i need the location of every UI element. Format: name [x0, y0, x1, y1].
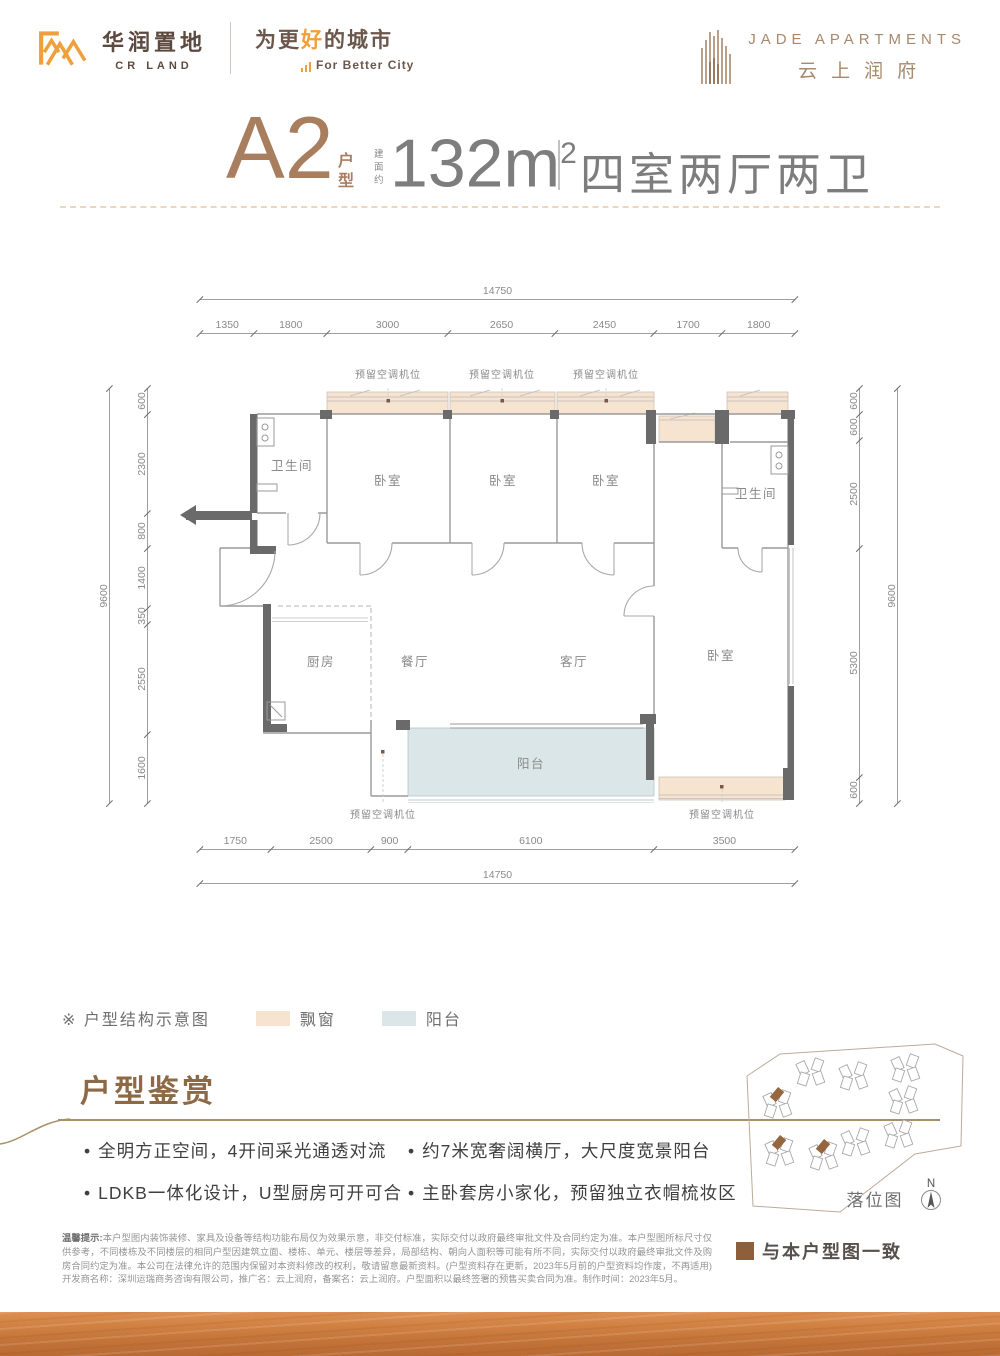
slogan-en: For Better City [316, 58, 414, 72]
dim-bottom-overall: 14750 [200, 870, 795, 888]
svg-text:N: N [927, 1178, 935, 1190]
site-plan-label: 落位图 [847, 1191, 904, 1210]
fixtures [257, 418, 788, 720]
room-label-bed2: 卧室 [489, 473, 517, 488]
disclaimer: 温馨提示:本户型图内装饰装修、家具及设备等结构功能布局仅为效果示意，非交付标准，… [62, 1232, 712, 1287]
room-label-living: 客厅 [560, 654, 588, 669]
room-label-dining: 餐厅 [401, 654, 429, 669]
doors [220, 513, 762, 616]
bay-window-swatch [256, 1011, 290, 1026]
unit-suffix: 户型 [338, 152, 354, 192]
room-label-bed3: 卧室 [592, 473, 620, 488]
dim-right-segments: 60060025005300600 [846, 388, 864, 803]
jade-apartments-logo: JADE APARTMENTS 云上润府 [700, 28, 966, 86]
flyer-page: 华润置地 CR LAND 为更好的城市 For Better City [0, 0, 1000, 1356]
dashed-separator [60, 206, 940, 208]
right-window [790, 548, 794, 684]
cr-slogan: 为更好的城市 For Better City [255, 24, 414, 72]
dim-left-segments: 6002300800140035025501600 [134, 388, 152, 803]
features-column-left: 全明方正空间，4开间采光通透对流 LDKB一体化设计，U型厨房可开可合 [84, 1138, 402, 1205]
cr-land-logo: 华润置地 CR LAND 为更好的城市 For Better City [38, 22, 414, 74]
unit-area: 132m2 [390, 116, 577, 202]
site-legend: 与本户型图一致 [736, 1238, 902, 1264]
plan-legend: ※ 户型结构示意图 飘窗 阳台 [62, 1006, 462, 1030]
feature-item: 全明方正空间，4开间采光通透对流 [84, 1138, 402, 1163]
room-label-bed-master: 卧室 [707, 648, 735, 663]
entry-arrow-icon [180, 505, 196, 525]
tower-bars-icon [700, 28, 734, 86]
bottom-gradient-bar [0, 1312, 1000, 1356]
slogan-cn: 为更好的城市 [255, 24, 414, 54]
room-label-bath-left: 卫生间 [271, 459, 313, 473]
dim-top-segments: 1350180030002650245017001800 [200, 320, 795, 338]
cr-brand-cn: 华润置地 [102, 25, 206, 57]
ac-slot-label: 预留空调机位 [355, 366, 421, 381]
site-plan: 落位图 N [735, 1040, 990, 1225]
cr-brand-en: CR LAND [115, 60, 193, 72]
title-divider [558, 140, 560, 190]
legend-note: ※ 户型结构示意图 [62, 1006, 210, 1030]
equalizer-bars-icon [301, 62, 311, 72]
building-clusters [763, 1054, 920, 1170]
balcony-swatch [382, 1011, 416, 1026]
unit-layout: 四室两厅两卫 [580, 138, 874, 203]
features-title: 户型鉴赏 [80, 1066, 216, 1111]
dim-bottom-segments: 1750250090061003500 [200, 836, 795, 854]
dim-right-overall: 9600 [884, 388, 902, 803]
features-column-right: 约7米宽奢阔横厅，大尺度宽景阳台 主卧套房小家化，预留独立衣帽梳妆区 [408, 1138, 737, 1205]
room-label-kitchen: 厨房 [307, 654, 335, 669]
kitchen-window [272, 618, 368, 622]
dim-left-overall: 9600 [96, 388, 114, 803]
ac-slot-label: 预留空调机位 [573, 366, 639, 381]
north-compass-icon: N [922, 1178, 941, 1210]
jade-name-cn: 云上润府 [798, 56, 930, 83]
feature-item: 主卧套房小家化，预留独立衣帽梳妆区 [408, 1180, 737, 1205]
feature-item: LDKB一体化设计，U型厨房可开可合 [84, 1180, 402, 1205]
header-divider [230, 22, 231, 74]
dim-top-overall: 14750 [200, 286, 795, 304]
disclaimer-lead: 温馨提示: [62, 1233, 103, 1243]
area-prefix: 建面约 [374, 148, 384, 187]
room-label-bath-right: 卫生间 [735, 487, 777, 501]
floor-plan: 卫生间 卧室 卧室 卧室 卫生间 厨房 餐厅 客厅 卧室 阳台 [180, 388, 795, 803]
ac-slot-label: 预留空调机位 [469, 366, 535, 381]
highlight-swatch [736, 1242, 754, 1260]
ac-slot-label: 预留空调机位 [350, 806, 416, 821]
unit-code: A2 [226, 100, 334, 196]
disclaimer-body: 本户型图内装饰装修、家具及设备等结构功能布局仅为效果示意，非交付标准，实际交付以… [62, 1233, 712, 1284]
cr-mountain-icon [38, 23, 88, 73]
legend-bay-window: 飘窗 [300, 1006, 336, 1030]
legend-balcony: 阳台 [426, 1006, 462, 1030]
jade-name-en: JADE APARTMENTS [748, 31, 966, 48]
room-label-bed1: 卧室 [374, 473, 402, 488]
room-label-balcony: 阳台 [517, 756, 545, 771]
flourish-curve [0, 1108, 70, 1148]
site-legend-text: 与本户型图一致 [762, 1238, 902, 1264]
feature-item: 约7米宽奢阔横厅，大尺度宽景阳台 [408, 1138, 737, 1163]
ac-slot-label: 预留空调机位 [689, 806, 755, 821]
